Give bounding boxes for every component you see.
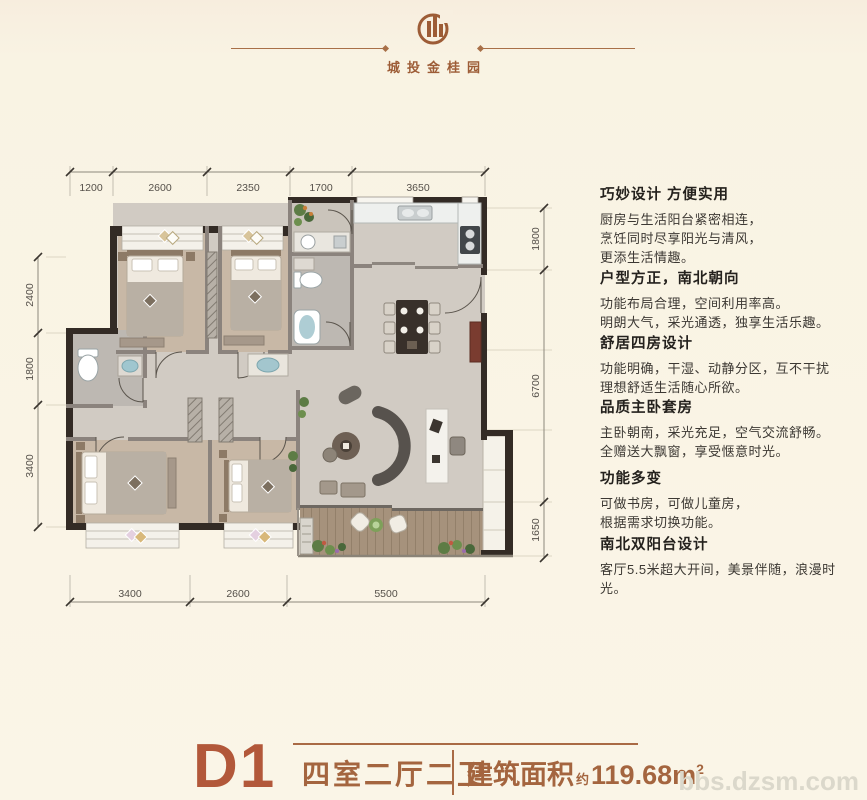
note-line: 根据需求切换功能。 <box>600 513 862 532</box>
note-line: 功能布局合理，空间利用率高。 <box>600 294 862 313</box>
note-line: 可做书房，可做儿童房， <box>600 494 862 513</box>
dimension-right: 1800 6700 1650 <box>530 204 548 562</box>
dim-label: 1200 <box>79 182 103 194</box>
note-line: 客厅5.5米超大开间，美景伴随，浪漫时光。 <box>600 560 862 598</box>
note-title: 品质主卧套房 <box>600 396 862 417</box>
note-title: 功能多变 <box>600 467 862 488</box>
note-line: 更添生活情趣。 <box>600 248 862 267</box>
note-line: 主卧朝南，采光充足，空气交流舒畅。 <box>600 423 862 442</box>
dim-label: 5500 <box>374 588 398 600</box>
note-title: 南北双阳台设计 <box>600 533 862 554</box>
unit-code: D1 <box>193 731 276 800</box>
note-block-5: 功能多变 可做书房，可做儿童房， 根据需求切换功能。 <box>600 467 862 532</box>
dining-table <box>384 300 440 354</box>
note-block-1: 巧妙设计 方便实用 厨房与生活阳台紧密相连， 烹饪同时尽享阳光与清风， 更添生活… <box>600 183 862 267</box>
dim-label: 3650 <box>406 182 430 194</box>
dimension-bottom: 3400 2600 5500 <box>66 575 489 607</box>
note-line: 理想舒适生活随心所欲。 <box>600 378 862 397</box>
dim-label: 3400 <box>118 588 142 600</box>
note-title: 舒居四房设计 <box>600 332 862 353</box>
note-line: 烹饪同时尽享阳光与清风， <box>600 229 862 248</box>
watermark: bbs.dzsm.com <box>678 766 859 797</box>
unit-area: 建筑面积约119.68m2 <box>466 753 704 792</box>
note-line: 全赠送大飘窗，享受惬意时光。 <box>600 442 862 461</box>
note-block-2: 户型方正，南北朝向 功能布局合理，空间利用率高。 明朗大气，采光通透，独享生活乐… <box>600 267 862 332</box>
dim-label: 1800 <box>24 357 36 381</box>
note-line: 厨房与生活阳台紧密相连， <box>600 210 862 229</box>
footer-rule <box>293 743 638 745</box>
dim-label: 1800 <box>530 227 542 251</box>
note-block-6: 南北双阳台设计 客厅5.5米超大开间，美景伴随，浪漫时光。 <box>600 533 862 598</box>
dimension-top: 1200 2600 2350 1700 3650 <box>66 166 489 196</box>
area-label: 建筑面积 <box>466 760 574 790</box>
unit-layout: 四室二厅二卫 <box>302 753 488 793</box>
note-title: 巧妙设计 方便实用 <box>600 183 862 204</box>
area-approx: 约 <box>576 772 589 787</box>
note-line: 明朗大气，采光通透，独享生活乐趣。 <box>600 313 862 332</box>
dim-label: 1700 <box>309 182 333 194</box>
dim-label: 2600 <box>226 588 250 600</box>
dimension-left: 2400 1800 3400 <box>24 253 42 531</box>
dim-label: 3400 <box>24 454 36 478</box>
note-block-4: 品质主卧套房 主卧朝南，采光充足，空气交流舒畅。 全赠送大飘窗，享受惬意时光。 <box>600 396 862 461</box>
footer-divider <box>452 750 454 795</box>
dim-label: 6700 <box>530 374 542 398</box>
dim-label: 2400 <box>24 283 36 307</box>
dim-label: 2600 <box>148 182 172 194</box>
floorplan-page: 城投金桂园 <box>0 0 867 800</box>
note-block-3: 舒居四房设计 功能明确，干湿、动静分区，互不干扰 理想舒适生活随心所欲。 <box>600 332 862 397</box>
dim-label: 2350 <box>236 182 260 194</box>
dim-label: 1650 <box>530 518 542 542</box>
note-line: 功能明确，干湿、动静分区，互不干扰 <box>600 359 862 378</box>
note-title: 户型方正，南北朝向 <box>600 267 862 288</box>
